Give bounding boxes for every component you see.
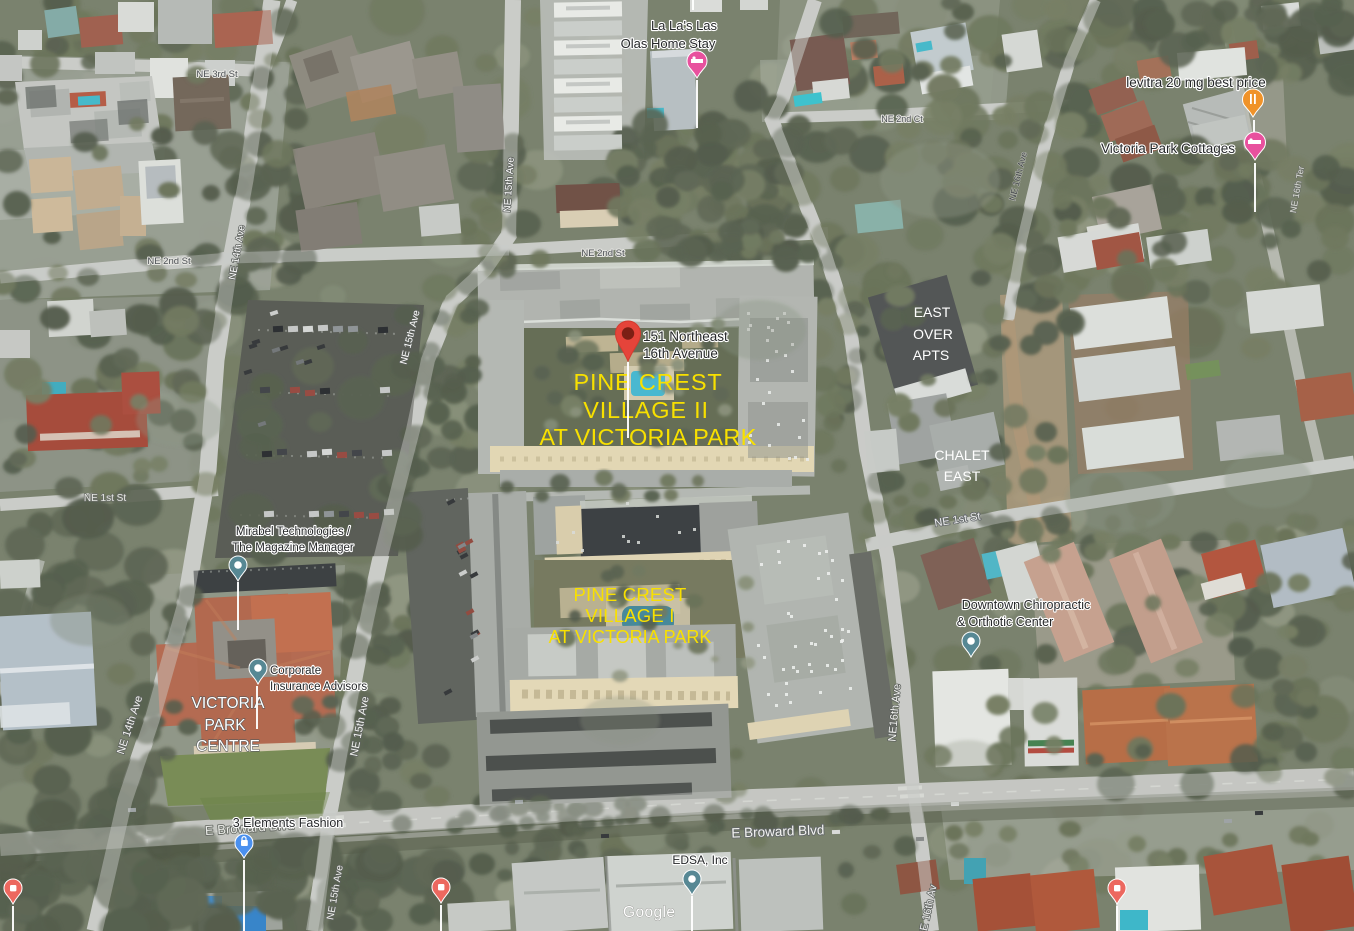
svg-text:PARK: PARK <box>204 717 246 734</box>
svg-text:& Orthotic Center: & Orthotic Center <box>957 615 1054 629</box>
svg-text:3 Elements Fashion: 3 Elements Fashion <box>233 816 344 830</box>
svg-text:NE 2nd St: NE 2nd St <box>147 256 191 267</box>
svg-text:AT VICTORIA PARK: AT VICTORIA PARK <box>549 627 712 647</box>
svg-text:PINE CREST: PINE CREST <box>573 369 722 395</box>
svg-text:VILLAGE I: VILLAGE I <box>585 605 674 626</box>
svg-text:OVER: OVER <box>913 326 953 342</box>
svg-text:Downtown Chiropractic: Downtown Chiropractic <box>962 598 1091 612</box>
svg-text:levitra 20 mg best price: levitra 20 mg best price <box>1126 75 1266 90</box>
svg-text:151 Northeast: 151 Northeast <box>643 329 728 344</box>
svg-text:NE 1st St: NE 1st St <box>84 493 126 504</box>
svg-text:NE 2nd Ct: NE 2nd Ct <box>881 114 923 124</box>
svg-text:Insurance Advisors: Insurance Advisors <box>270 681 367 693</box>
svg-text:VILLAGE II: VILLAGE II <box>583 397 709 423</box>
svg-text:La La's Las: La La's Las <box>651 18 718 33</box>
svg-text:PINE CREST: PINE CREST <box>573 584 686 605</box>
svg-text:EDSA, Inc: EDSA, Inc <box>672 853 727 867</box>
svg-text:VICTORIA: VICTORIA <box>192 695 266 712</box>
svg-text:The Magazine Manager: The Magazine Manager <box>232 542 354 554</box>
svg-text:Victoria Park Cottages: Victoria Park Cottages <box>1101 141 1235 156</box>
svg-text:CHALET: CHALET <box>934 447 990 463</box>
svg-text:APTS: APTS <box>913 347 950 363</box>
svg-text:Google: Google <box>623 904 675 921</box>
svg-text:Olas Home Stay: Olas Home Stay <box>621 36 716 51</box>
svg-text:NE 2nd St: NE 2nd St <box>581 248 625 259</box>
svg-text:CENTRE: CENTRE <box>196 738 260 755</box>
svg-text:Corporate: Corporate <box>270 665 321 677</box>
svg-text:EAST: EAST <box>944 468 981 484</box>
svg-text:AT VICTORIA PARK: AT VICTORIA PARK <box>539 424 756 450</box>
svg-text:16th Avenue: 16th Avenue <box>643 346 718 361</box>
svg-text:EAST: EAST <box>914 304 951 320</box>
svg-text:Mirabel Technologies /: Mirabel Technologies / <box>236 526 351 538</box>
svg-text:NE 3rd St: NE 3rd St <box>196 69 238 80</box>
